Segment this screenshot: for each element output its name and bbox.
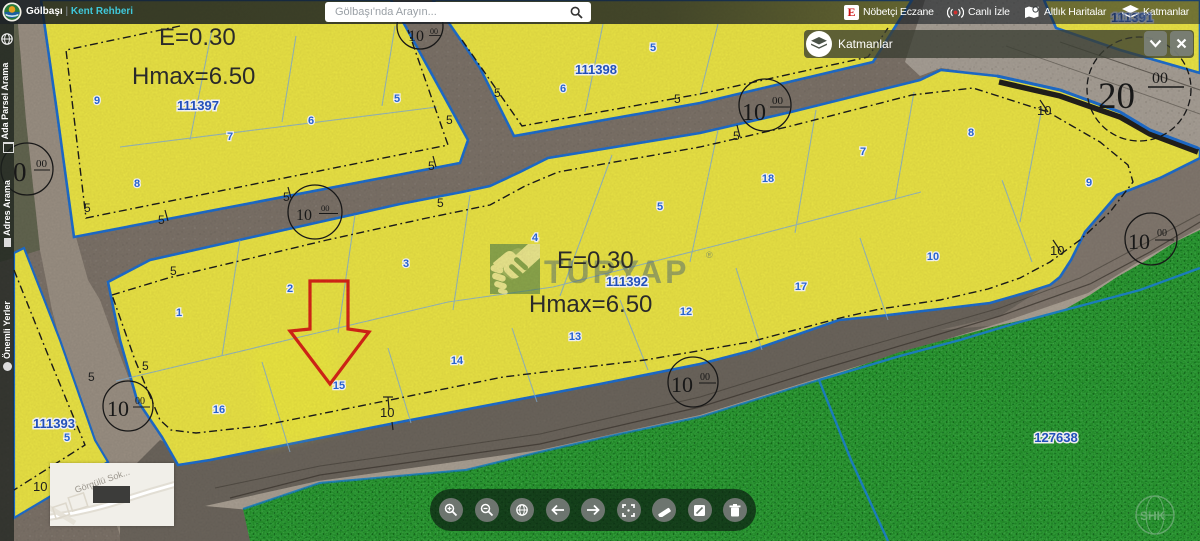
svg-text:SHK: SHK	[1140, 509, 1166, 523]
